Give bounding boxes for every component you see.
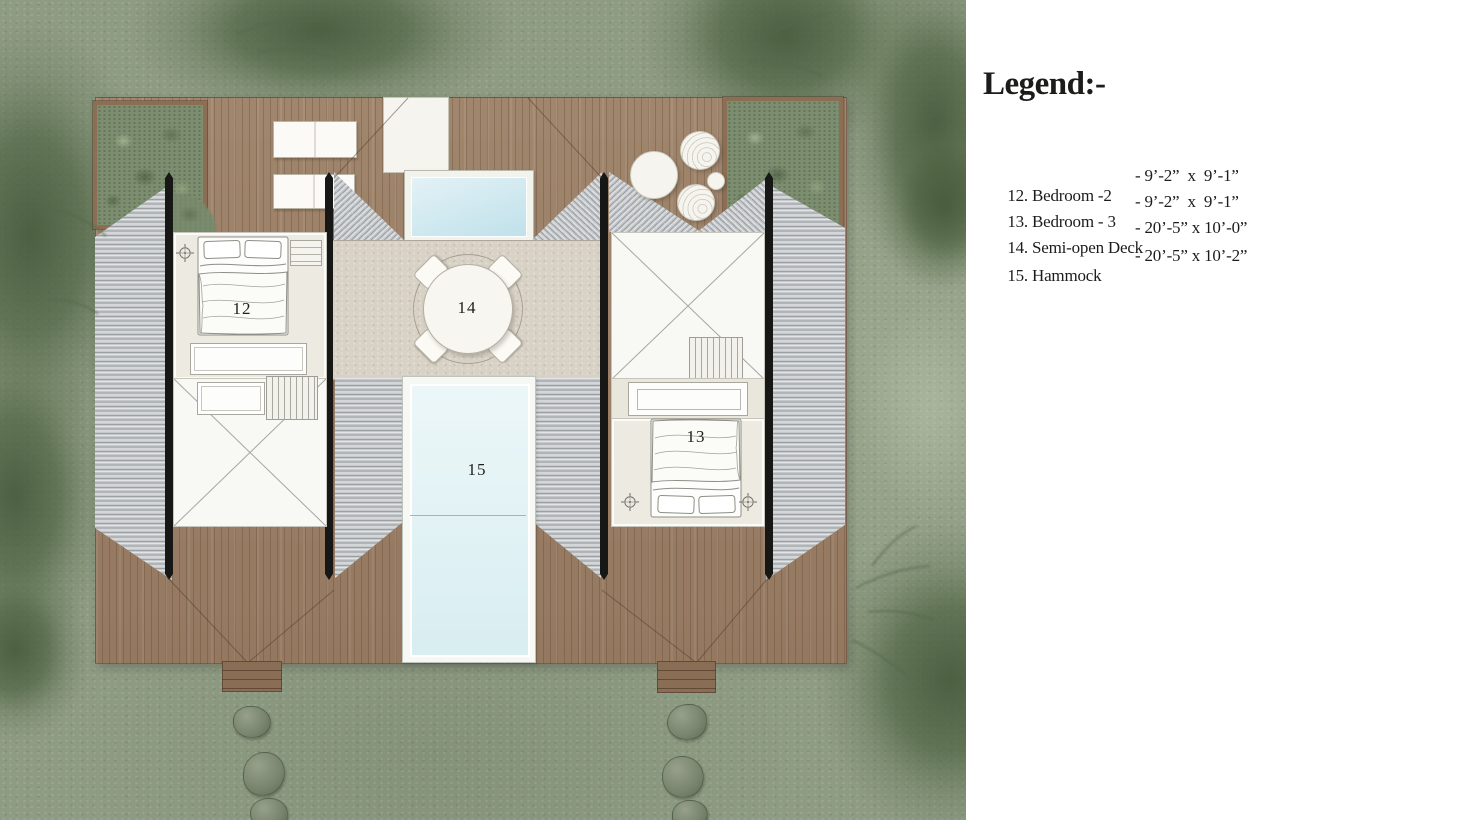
deck-steps bbox=[657, 661, 716, 693]
legend-item-dimensions: - 20’-5” x 10’-2” bbox=[1135, 246, 1247, 266]
roof-ridge-beam bbox=[600, 172, 608, 580]
stepping-stone bbox=[662, 756, 704, 798]
shell-chair bbox=[677, 184, 715, 221]
legend-title: Legend:- bbox=[983, 66, 1106, 103]
stepping-stone bbox=[250, 798, 288, 820]
stairs bbox=[266, 376, 318, 420]
legend-item-label: 15. Hammock bbox=[1007, 266, 1101, 285]
stepping-stone bbox=[672, 800, 708, 820]
room-number-label: 15 bbox=[468, 460, 487, 480]
louvered-roof-panel bbox=[766, 183, 845, 580]
legend-item: 15. Hammock - 20’-5” x 10’-2” bbox=[983, 246, 1101, 326]
pouf bbox=[707, 172, 725, 190]
plunge-pool-water bbox=[411, 177, 527, 237]
wardrobe bbox=[290, 240, 322, 266]
roof-ridge-beam bbox=[165, 172, 173, 580]
legend-item-dimensions: - 9’-2” x 9’-1” bbox=[1135, 166, 1239, 186]
stairs bbox=[689, 337, 743, 380]
shell-chair bbox=[680, 131, 720, 170]
console-ledge-frame bbox=[628, 382, 748, 416]
roof-ridge-beam bbox=[765, 172, 773, 580]
stepping-stone bbox=[667, 704, 707, 740]
hammock-net bbox=[410, 384, 530, 657]
louvered-roof-panel bbox=[95, 183, 172, 580]
legend-item-dimensions: - 9’-2” x 9’-1” bbox=[1135, 192, 1239, 212]
bench bbox=[197, 382, 265, 415]
room-number-label: 13 bbox=[687, 427, 706, 447]
deck-steps bbox=[222, 661, 282, 692]
pouf bbox=[630, 151, 678, 199]
legend-panel: Legend:- 12. Bedroom -2 - 9’-2” x 9’-1” … bbox=[966, 0, 1458, 820]
screenshot-root: 12 13 14 15 Legend:- 12. Bedroom -2 - 9’… bbox=[0, 0, 1458, 820]
stepping-stone bbox=[233, 706, 271, 738]
site-plan-illustration: 12 13 14 15 bbox=[0, 0, 966, 820]
legend-item-dimensions: - 20’-5” x 10’-0” bbox=[1135, 218, 1247, 238]
room-number-label: 14 bbox=[458, 298, 477, 318]
hammock-divider bbox=[410, 515, 526, 516]
pool-pad bbox=[383, 97, 449, 173]
bench bbox=[190, 343, 307, 375]
sun-lounger bbox=[273, 121, 357, 158]
console-ledge bbox=[611, 378, 765, 420]
room-number-label: 12 bbox=[233, 299, 252, 319]
